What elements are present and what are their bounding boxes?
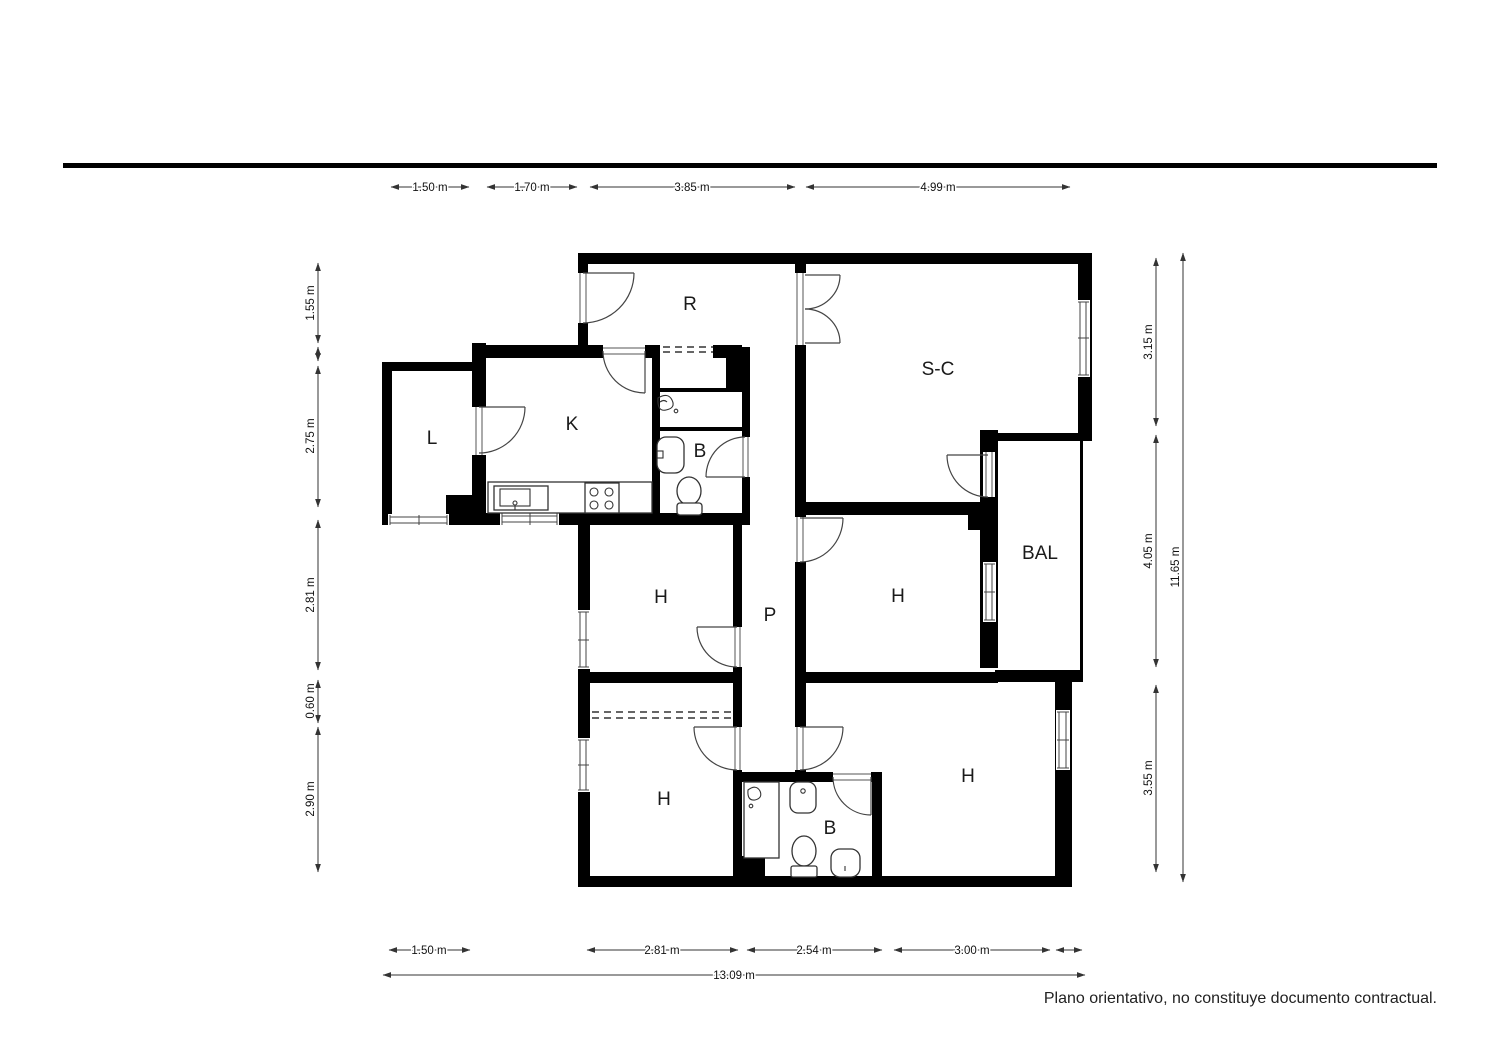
dim-label: 3.15 m: [1143, 324, 1155, 359]
dim-left-3: 0.60 m: [305, 680, 318, 723]
dim-label: 0.60 m: [305, 683, 317, 718]
wall: [578, 876, 1072, 887]
door: [472, 407, 525, 455]
wall: [872, 772, 882, 878]
floor-plan-drawing: R S-C K L B BAL H P H H B H 1.50 m 1.70 …: [0, 0, 1500, 1061]
dim-label: 2.54 m: [796, 945, 831, 957]
dim-top-1: 1.70 m: [487, 182, 577, 194]
bidet-icon: [831, 849, 860, 877]
washbasin-icon: [658, 395, 678, 412]
wall: [795, 562, 806, 728]
window: [388, 514, 449, 526]
window: [1077, 300, 1090, 377]
dim-left-4: 2.90 m: [305, 727, 318, 872]
window: [1056, 710, 1070, 770]
wall: [733, 856, 765, 877]
partition: [660, 427, 742, 431]
wall: [578, 323, 588, 345]
room-label-living: S-C: [922, 359, 955, 380]
dim-right-total: 11.65 m: [1170, 253, 1183, 882]
dim-bottom-3: 3.00 m: [894, 945, 1050, 957]
room-label-kitchen: K: [566, 414, 579, 435]
door: [794, 727, 843, 770]
door: [794, 517, 843, 562]
dim-top-2: 3.85 m: [590, 182, 795, 194]
window: [577, 610, 590, 669]
door: [706, 437, 751, 477]
door: [694, 727, 743, 770]
wall: [472, 343, 486, 407]
wall: [795, 253, 806, 274]
dim-label: 3.55 m: [1143, 760, 1155, 795]
disclaimer-text: Plano orientativo, no constituye documen…: [1044, 990, 1437, 1008]
room-label-bedroom-mid-right: H: [891, 586, 905, 607]
dim-top-3: 4.99 m: [806, 182, 1070, 194]
wall: [446, 495, 472, 525]
dim-left-2: 2.81 m: [305, 520, 318, 670]
toilet-icon: [791, 836, 817, 877]
dim-right-0: 3.15 m: [1143, 258, 1156, 426]
window: [577, 738, 590, 792]
room-label-laundry: L: [427, 428, 438, 449]
wall: [726, 358, 750, 390]
dim-label: 1.50 m: [412, 182, 447, 194]
dim-bottom-2: 2.54 m: [747, 945, 882, 957]
wall: [578, 253, 588, 275]
wall: [742, 772, 833, 782]
room-label-balcony: BAL: [1022, 543, 1058, 564]
wall: [713, 345, 742, 358]
wall: [578, 672, 742, 683]
window: [500, 512, 559, 526]
partition: [660, 388, 742, 392]
wall: [995, 670, 1083, 682]
dim-label: 2.81 m: [644, 945, 679, 957]
dim-label: 11.65 m: [1170, 547, 1182, 588]
room-label-bedroom-low-left: H: [657, 789, 671, 810]
window: [983, 562, 996, 622]
room-label-bedroom-mid-left: H: [654, 587, 668, 608]
dim-bottom-total: 13.09 m: [383, 970, 1085, 982]
dim-label: 1.50 m: [411, 945, 446, 957]
wall: [382, 362, 392, 525]
room-label-bedroom-low-right: H: [961, 766, 975, 787]
door: [603, 344, 645, 393]
dim-bottom-1: 2.81 m: [587, 945, 738, 957]
dim-label: 2.75 m: [305, 418, 317, 453]
door: [833, 771, 871, 815]
room-label-corridor: P: [764, 605, 777, 626]
kitchen-sink-icon: [494, 486, 548, 510]
wall: [985, 433, 1092, 441]
dim-label: 13.09 m: [713, 970, 755, 982]
dim-label: 4.05 m: [1143, 533, 1155, 568]
shower-icon: [744, 782, 779, 858]
dashed-openings: [592, 344, 731, 718]
wall: [795, 672, 998, 683]
wall: [382, 362, 472, 371]
toilet-icon: [677, 477, 702, 515]
stove-icon: [585, 483, 619, 513]
washbasin-icon: [657, 437, 684, 473]
room-label-bath1: B: [694, 441, 707, 462]
washbasin-icon: [790, 782, 816, 813]
dim-label: 4.99 m: [920, 182, 955, 194]
dim-label: 1.55 m: [305, 285, 317, 320]
dim-label: 2.81 m: [305, 577, 317, 612]
balcony-edge: [1080, 441, 1083, 672]
dashed-opening: [592, 712, 731, 718]
wall: [472, 345, 603, 358]
dim-left-1: 2.75 m: [305, 366, 318, 507]
wall: [795, 345, 806, 517]
double-door: [794, 273, 840, 345]
entrance-door: [577, 273, 634, 323]
dim-label: 3.85 m: [674, 182, 709, 194]
wall: [578, 525, 590, 887]
dim-top-0: 1.50 m: [391, 182, 469, 194]
wall: [795, 502, 985, 515]
door: [697, 627, 743, 667]
dim-bottom-0: 1.50 m: [389, 945, 470, 957]
dim-left-0: 1.55 m: [305, 263, 318, 343]
wall: [578, 253, 1092, 264]
door: [947, 452, 995, 497]
floor-plan-page: R S-C K L B BAL H P H H B H 1.50 m 1.70 …: [0, 0, 1500, 1061]
dim-label: 2.90 m: [305, 781, 317, 816]
room-label-bath2: B: [824, 818, 837, 839]
dim-right-1: 4.05 m: [1143, 435, 1156, 667]
dim-right-2: 3.55 m: [1143, 685, 1156, 872]
dim-label: 1.70 m: [514, 182, 549, 194]
room-label-hall: R: [683, 294, 697, 315]
dim-label: 3.00 m: [954, 945, 989, 957]
